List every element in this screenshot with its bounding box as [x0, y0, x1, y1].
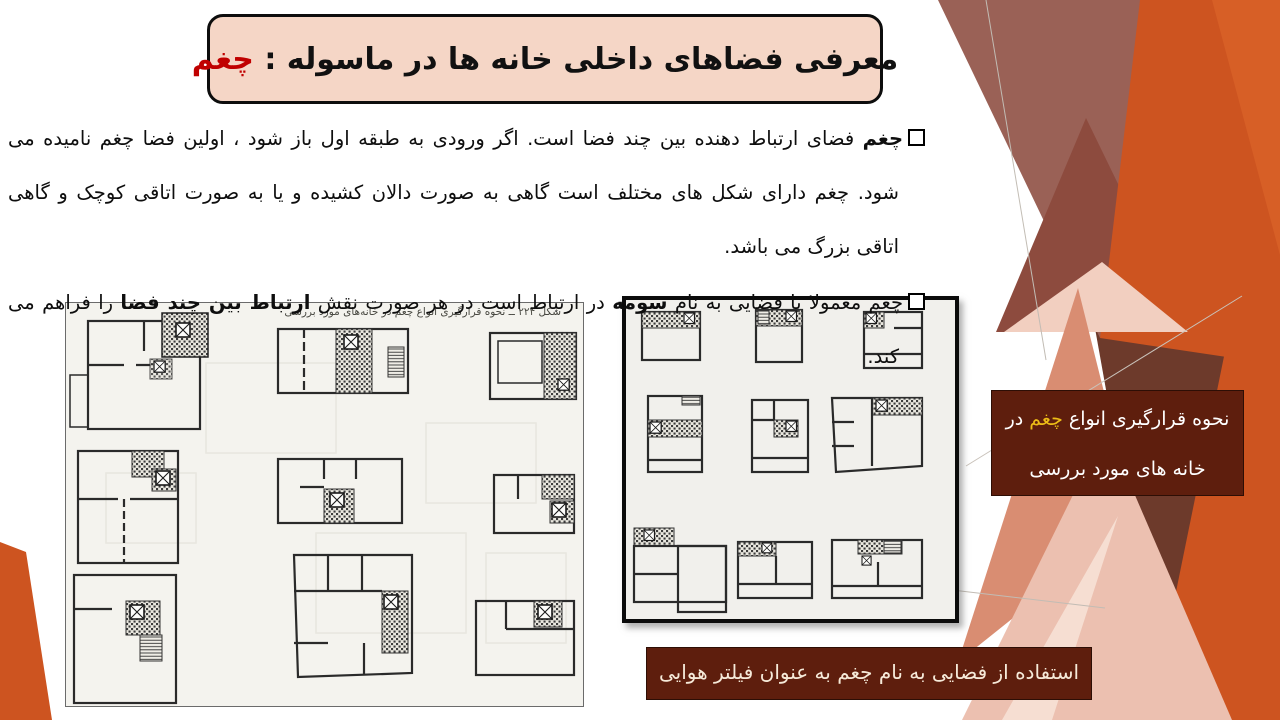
slide-title-keyword: چغم: [192, 42, 254, 77]
body-text: چغم فضای ارتباط دهنده بین چند فضا است. ا…: [8, 112, 925, 384]
slide-title-text: معرفی فضاهای داخلی خانه ها در ماسوله :: [254, 42, 898, 77]
p2-c: در ارتباط است در هر صورت نقش: [310, 291, 612, 314]
p1-lead: چغم: [863, 127, 903, 150]
bullet-square-icon: [908, 293, 925, 310]
right-caption-text-b: در: [1006, 408, 1030, 430]
slide-title: معرفی فضاهای داخلی خانه ها در ماسوله : چ…: [192, 42, 898, 77]
bullet-square-icon: [908, 129, 925, 146]
right-caption-line1: نحوه قرارگیری انواع چغم در: [992, 394, 1243, 444]
right-caption-text-a: نحوه قرارگیری انواع: [1063, 408, 1230, 430]
p1-rest: فضای ارتباط دهنده بین چند فضا است. اگر و…: [8, 127, 899, 258]
right-caption-keyword: چغم: [1029, 408, 1063, 430]
slide-title-box: معرفی فضاهای داخلی خانه ها در ماسوله : چ…: [207, 14, 883, 104]
bottom-caption-text: استفاده از فضایی به نام چغم به عنوان فیل…: [659, 660, 1079, 684]
bullet-paragraph-1: چغم فضای ارتباط دهنده بین چند فضا است. ا…: [8, 112, 925, 274]
bullet-paragraph-2: چغم معمولا با فضایی به نام سومه در ارتبا…: [8, 276, 925, 384]
right-caption-line2: خانه های مورد بررسی: [992, 444, 1243, 494]
p2-d: ارتباط بین چند فضا: [120, 291, 310, 314]
p2-b: سومه: [612, 291, 667, 314]
p2-a: چغم معمولا با فضایی به نام: [668, 291, 904, 314]
right-caption-box: نحوه قرارگیری انواع چغم در خانه های مورد…: [991, 390, 1244, 496]
presentation-slide: معرفی فضاهای داخلی خانه ها در ماسوله : چ…: [0, 0, 1280, 720]
bottom-caption-box: استفاده از فضایی به نام چغم به عنوان فیل…: [646, 647, 1092, 700]
